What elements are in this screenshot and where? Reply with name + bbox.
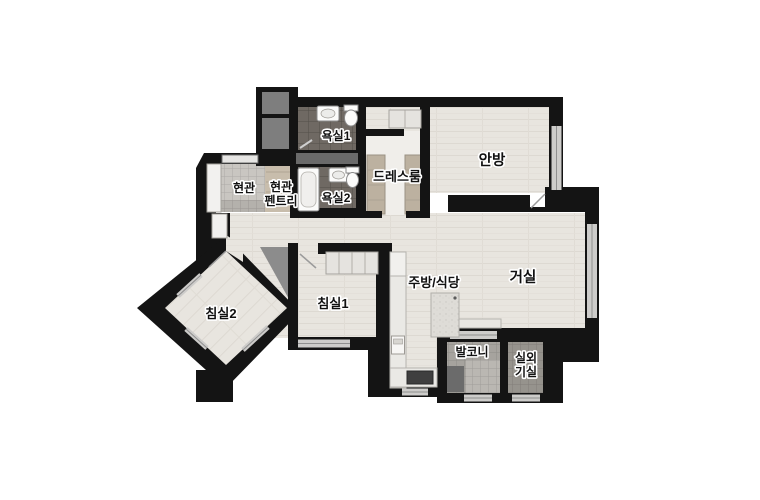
duct-shaft-divider — [262, 114, 289, 118]
wall-master-south — [448, 195, 530, 212]
floor-plan: 욕실1 욕실2 현관 현관 펜트리 드레스룸 안방 거실 주방/식당 침실1 침… — [0, 0, 760, 500]
kitchen-stove — [407, 371, 433, 384]
room-master-floor — [428, 105, 553, 193]
wall-dress-bottom-right — [406, 211, 430, 218]
duct-shaft — [262, 92, 289, 149]
kitchen-island — [431, 293, 459, 337]
front-door — [222, 155, 258, 163]
bath-divider-inner — [296, 153, 358, 164]
label-bath2: 욕실2 — [322, 190, 351, 205]
island-faucet — [453, 296, 456, 299]
wall-closet-divider — [358, 129, 404, 136]
label-outdoor-unit-line2: 기실 — [515, 364, 537, 379]
wall-dress-bottom-left — [360, 211, 382, 218]
label-bedroom1: 침실1 — [317, 296, 348, 311]
dressroom-wardrobe-left — [367, 155, 385, 214]
label-master-bedroom: 안방 — [479, 151, 506, 169]
wall-living-utility — [505, 328, 543, 342]
wall-bed1-left — [288, 243, 298, 350]
label-outdoor-unit-line1: 실외 — [515, 350, 537, 365]
floor-plan-page: 욕실1 욕실2 현관 현관 펜트리 드레스룸 안방 거실 주방/식당 침실1 침… — [0, 0, 760, 500]
wall-bottom-notch — [196, 370, 233, 402]
shoe-cabinet-upper — [207, 164, 221, 212]
wall-bottom-se — [437, 393, 563, 403]
wall-balcony-utility — [500, 340, 508, 393]
label-kitchen-dining: 주방/식당 — [408, 275, 459, 290]
bath2-toilet — [347, 173, 359, 188]
label-pantry-line2: 펜트리 — [264, 193, 297, 208]
wall-corner-se — [543, 328, 599, 362]
label-living-room: 거실 — [510, 269, 537, 286]
label-pantry-line1: 현관 — [270, 179, 292, 194]
label-balcony: 발코니 — [455, 344, 488, 359]
bath1-toilet — [345, 110, 358, 126]
balcony-shaft — [447, 366, 464, 392]
label-bedroom2: 침실2 — [205, 306, 236, 321]
label-dressroom: 드레스룸 — [373, 169, 421, 184]
shoe-cabinet-lower — [212, 214, 227, 238]
label-entrance: 현관 — [233, 180, 255, 195]
label-bath1: 욕실1 — [322, 128, 351, 143]
kitchen-fridge — [390, 252, 406, 276]
